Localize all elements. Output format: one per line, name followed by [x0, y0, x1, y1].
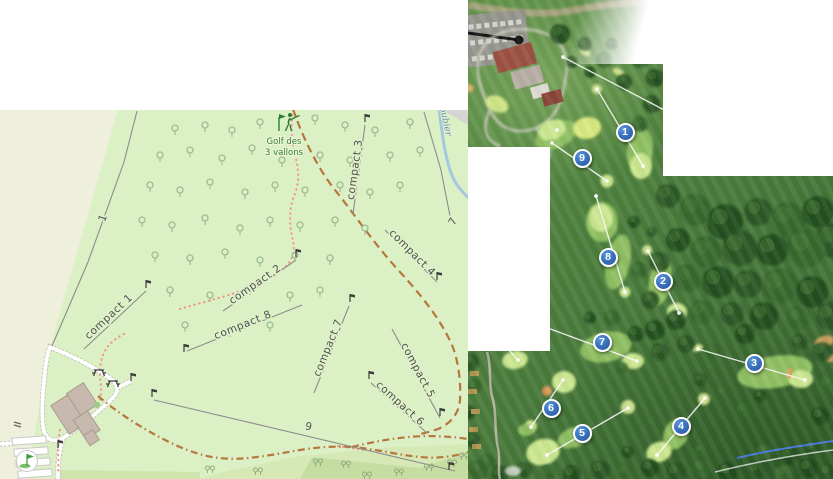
white-blob [505, 466, 521, 476]
osm-map[interactable]: Golf des 3 vallons oubier compact 1 comp… [0, 110, 468, 479]
bunker-hole-6 [542, 386, 552, 396]
cloud-fade [558, 0, 676, 64]
route-label-compact-2: compact 2 [227, 262, 284, 307]
missing-tile-top-right [663, 0, 833, 176]
missing-tile-middle-left [468, 147, 550, 351]
meadow-strip-left [55, 470, 200, 479]
route-label-compact-4: compact 4 [386, 227, 438, 279]
hole-marker-7[interactable]: 7 [593, 333, 612, 352]
route-label-9: 9 [304, 420, 314, 433]
hole-marker-5[interactable]: 5 [573, 424, 592, 443]
bush-icon [94, 402, 100, 408]
black-leader-dot [515, 36, 524, 45]
route-label-compact-1: compact 1 [83, 292, 136, 342]
hole-marker-9[interactable]: 9 [573, 149, 592, 168]
course-name-line1: Golf des [267, 137, 302, 147]
route-label-compact-7: compact 7 [311, 317, 345, 378]
hole-marker-2[interactable]: 2 [654, 272, 673, 291]
osm-map-canvas: Golf des 3 vallons oubier compact 1 comp… [0, 110, 468, 479]
route-label-compact-3: compact 3 [345, 139, 365, 201]
hole-marker-6[interactable]: 6 [542, 399, 561, 418]
map-comparison-screenshot: Golf des 3 vallons oubier compact 1 comp… [0, 0, 833, 479]
bunker-top-left [468, 84, 474, 92]
hole-marker-8[interactable]: 8 [599, 248, 618, 267]
hole-marker-1[interactable]: 1 [616, 123, 635, 142]
route-label-compact-6: compact 6 [373, 379, 426, 429]
hole-marker-4[interactable]: 4 [672, 417, 691, 436]
golf-poi-icon [17, 451, 38, 472]
golf-pin-flag-icons [58, 114, 454, 470]
hole-marker-3[interactable]: 3 [745, 354, 764, 373]
route-label-1: 1 [96, 213, 110, 224]
route-label-compact-8: compact 8 [212, 308, 273, 342]
course-name-line2: 3 vallons [265, 148, 304, 158]
route-label-7: 7 [446, 215, 460, 227]
route-label-compact-5: compact 5 [398, 341, 437, 400]
aerial-map[interactable]: 1 2 3 4 5 6 7 8 9 [468, 0, 833, 479]
